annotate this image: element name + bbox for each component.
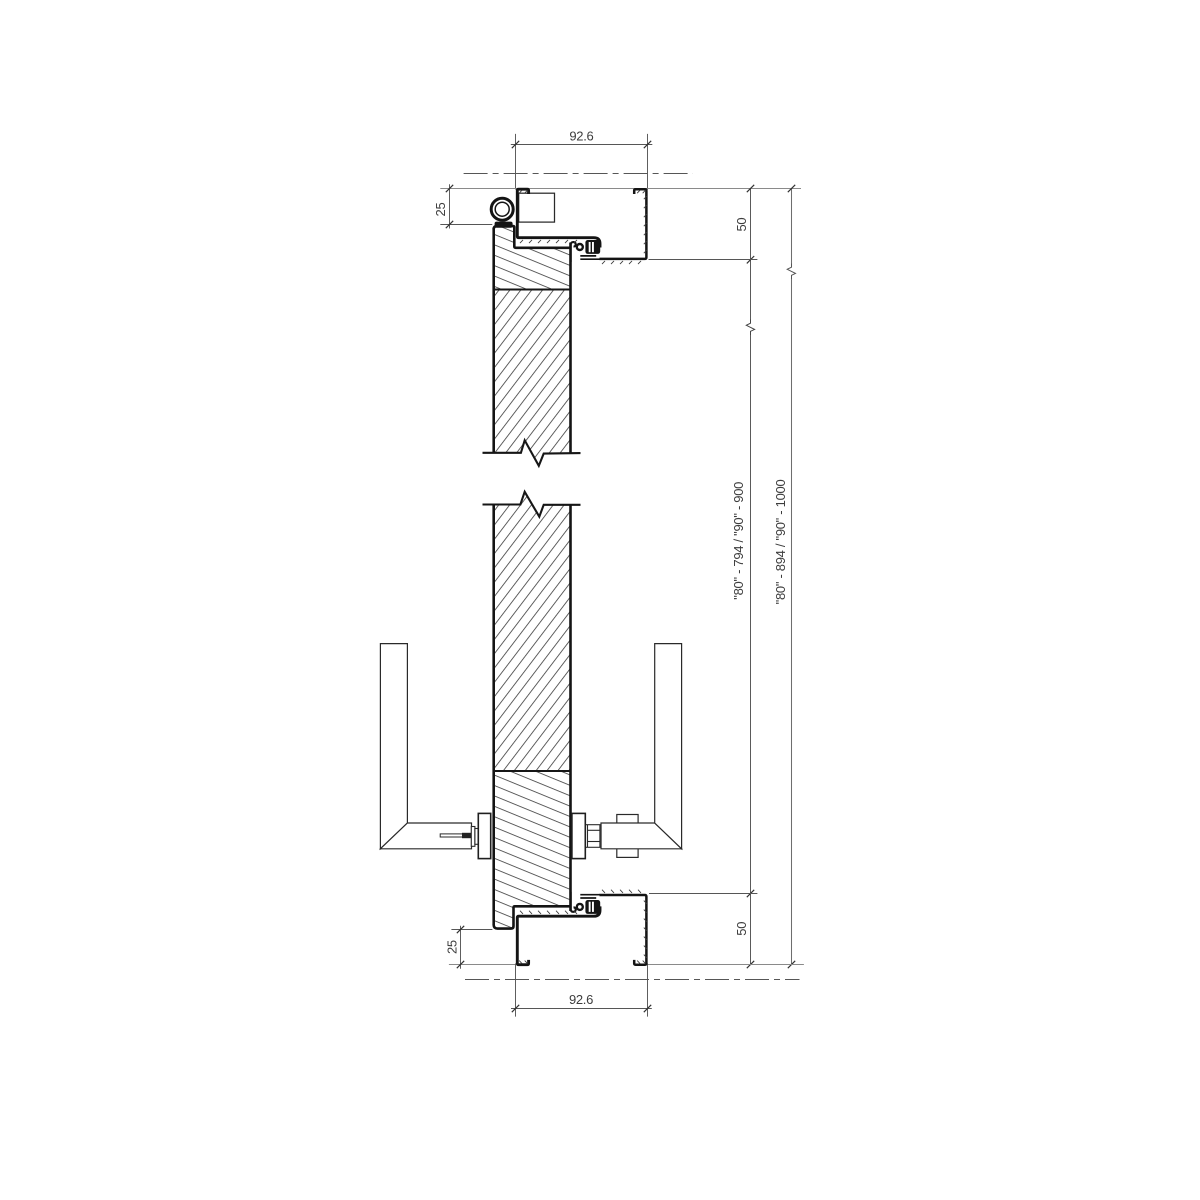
svg-text:92.6: 92.6: [569, 992, 593, 1007]
svg-text:"80" - 794 / "90" - 900: "80" - 794 / "90" - 900: [731, 482, 746, 600]
svg-text:"80" - 894 / "90" - 1000: "80" - 894 / "90" - 1000: [773, 480, 788, 605]
svg-text:25: 25: [433, 203, 448, 217]
svg-text:50: 50: [734, 922, 749, 936]
svg-text:92.6: 92.6: [569, 128, 593, 143]
svg-text:50: 50: [734, 218, 749, 232]
svg-text:25: 25: [445, 940, 460, 954]
